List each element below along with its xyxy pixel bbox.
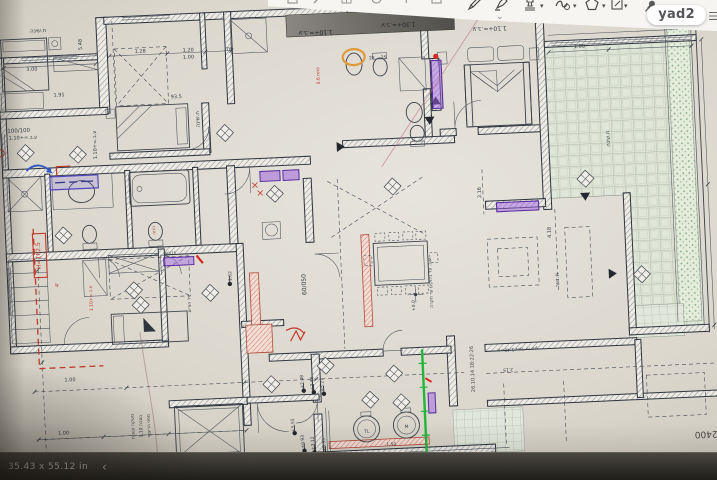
collapse-icon[interactable]: ⌄: [496, 12, 504, 22]
plan-label: פתח 0.6: [315, 67, 322, 85]
pencil-icon[interactable]: [466, 0, 482, 12]
partial-icon[interactable]: T: [400, 0, 413, 5]
plan-label: 25: [381, 55, 387, 61]
svg-text:T: T: [402, 0, 410, 5]
plan-label: +0.93: [300, 435, 307, 449]
plan-label: 1.00: [183, 54, 194, 60]
plan-label: +2.48: [299, 375, 306, 389]
partial-icon[interactable]: [312, 0, 325, 5]
chevron-down-icon[interactable]: ▾: [624, 2, 628, 10]
image-size-label: 35.43 x 55.12 in: [8, 462, 88, 472]
column-symbol: [266, 185, 284, 203]
plan-label: ע.ב.=+1.10: [92, 130, 99, 159]
plan-label: 1.91: [53, 92, 64, 98]
chevron-down-icon[interactable]: ▾: [540, 2, 544, 10]
column-symbol: [17, 144, 35, 162]
plan-label: 1.00: [58, 430, 69, 436]
plan-label: .76: [224, 47, 232, 53]
column-symbol: [361, 391, 379, 409]
plan-label: 60/75: [165, 250, 177, 256]
room-label-master: יח' הורים: [186, 295, 193, 313]
plan-label: 1.50: [386, 442, 396, 448]
column-symbol: [263, 375, 281, 393]
red-hatched-cabinet: [246, 324, 273, 353]
plan-label: M: [404, 424, 408, 430]
plan-label: 2.15: [503, 366, 513, 372]
plan-label: +3.12: [310, 436, 317, 450]
plan-label: בגובה 1.10: [138, 414, 145, 437]
bathroom-fixtures: [0, 11, 433, 253]
plan-label: 5.48: [78, 39, 84, 50]
scribble-icon[interactable]: [554, 0, 572, 12]
plan-label: 100/100: [7, 128, 31, 135]
shapes-icon[interactable]: [584, 0, 600, 12]
red-hatched-counter: [329, 437, 429, 449]
viewer-bottom-bar: 35.43 x 55.12 in ‹: [0, 452, 717, 480]
plan-label: 3.00: [26, 66, 37, 72]
room-label-bedroom3: ח.שינה: [605, 130, 612, 147]
column-symbol: [55, 227, 73, 245]
plan-label: ע.ב.=+1.10: [88, 285, 95, 311]
plan-label: +3.46: [309, 376, 316, 390]
room-label-bedroom2: ח.שינה: [195, 111, 202, 128]
plan-label: +5.27: [319, 378, 326, 392]
partial-icon[interactable]: [286, 0, 299, 5]
partial-icon[interactable]: [340, 0, 353, 5]
handwritten-2400: 2400: [694, 428, 717, 439]
plan-label: ע.ב. על בלוקים עד תקרה: [428, 258, 435, 308]
plan-label: +0.0: [411, 300, 417, 311]
paper-note: ע.ב.=+1.10: [472, 24, 507, 33]
stamp-icon[interactable]: [522, 0, 538, 12]
plan-label: 28: [369, 55, 375, 61]
column-symbol: [385, 365, 403, 383]
column-symbol: [393, 393, 411, 411]
plan-label: 2.16: [477, 187, 483, 198]
plan-label: +6.35: [321, 438, 328, 452]
orange-highlight: [342, 49, 365, 66]
annotate-icon[interactable]: [610, 0, 625, 12]
column-symbol: [216, 124, 234, 142]
menu-icon[interactable]: ☰: [708, 10, 717, 23]
plan-label: ע.ב.=+1.10: [9, 135, 38, 142]
back-icon[interactable]: ‹: [102, 460, 107, 474]
floorplan-canvas[interactable]: ח.שינה3.001.915.481.281.201.00.7693.5282…: [0, 0, 717, 480]
red-hatched-wall: [361, 235, 373, 327]
room-label-living: ח.דיור: [555, 272, 562, 287]
photo-of-floorplan: ח.שינה3.001.915.481.281.201.00.7693.5282…: [0, 0, 717, 480]
plan-label: מפני הריצוף: [147, 414, 153, 438]
partial-icon[interactable]: [370, 0, 383, 5]
chevron-down-icon[interactable]: ▾: [602, 2, 606, 10]
chevron-down-icon[interactable]: ▾: [573, 2, 577, 10]
height-note: H=162.5: [35, 242, 43, 269]
bedroom1-bed: [0, 36, 100, 110]
plan-label: 1.00: [64, 377, 75, 383]
plan-label: מעקה זכוכית: [131, 414, 137, 439]
highlighter-icon[interactable]: [493, 0, 509, 12]
room-label-bedroom1: ח.שינה: [30, 28, 47, 35]
plan-label: +1.62: [227, 271, 234, 285]
plan-label: 1.00: [574, 44, 585, 50]
plan-label: 1.28: [135, 49, 146, 55]
plan-label: +5.55: [290, 418, 297, 432]
plan-label: 1.20: [183, 47, 194, 53]
plan-label: 4': [55, 282, 61, 287]
plan-label: 93.5: [171, 94, 182, 100]
plan-label: TL: [363, 429, 370, 435]
column-symbol: [201, 284, 219, 302]
plan-label: 4.18: [547, 227, 553, 238]
bedroom2-bed: [106, 104, 190, 152]
yad2-watermark: yad2: [647, 5, 706, 25]
plan-label: הזזה: [152, 226, 157, 235]
partial-icon[interactable]: [430, 0, 443, 5]
column-symbol: [69, 146, 87, 164]
master-bed: [83, 256, 189, 346]
note-60-050: 60/050: [300, 274, 308, 296]
handwritten-date: 26.10.14 18:22:26: [469, 346, 477, 393]
